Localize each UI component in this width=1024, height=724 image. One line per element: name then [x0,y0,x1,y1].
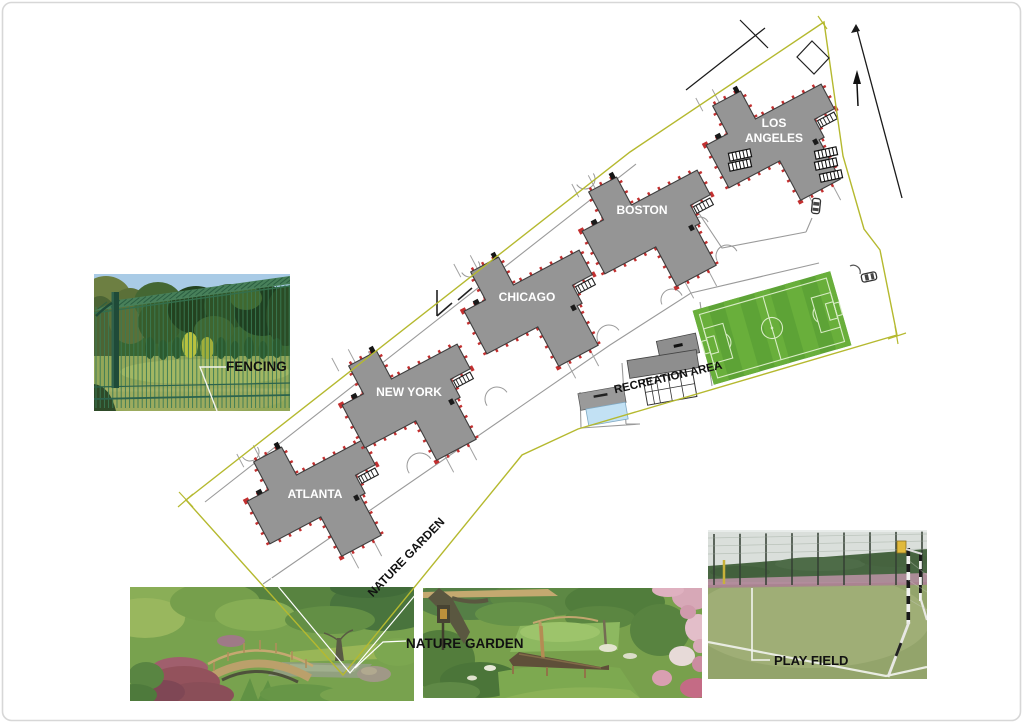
svg-text:CHICAGO: CHICAGO [499,290,556,304]
svg-text:NATURE GARDEN: NATURE GARDEN [406,636,524,651]
svg-text:ANGELES: ANGELES [745,131,803,145]
svg-text:BOSTON: BOSTON [616,203,667,217]
svg-text:FENCING: FENCING [226,359,287,374]
svg-text:PLAY FIELD: PLAY FIELD [774,653,848,668]
svg-text:ATLANTA: ATLANTA [288,487,343,501]
svg-text:NEW YORK: NEW YORK [376,385,442,399]
svg-text:LOS: LOS [762,116,787,130]
